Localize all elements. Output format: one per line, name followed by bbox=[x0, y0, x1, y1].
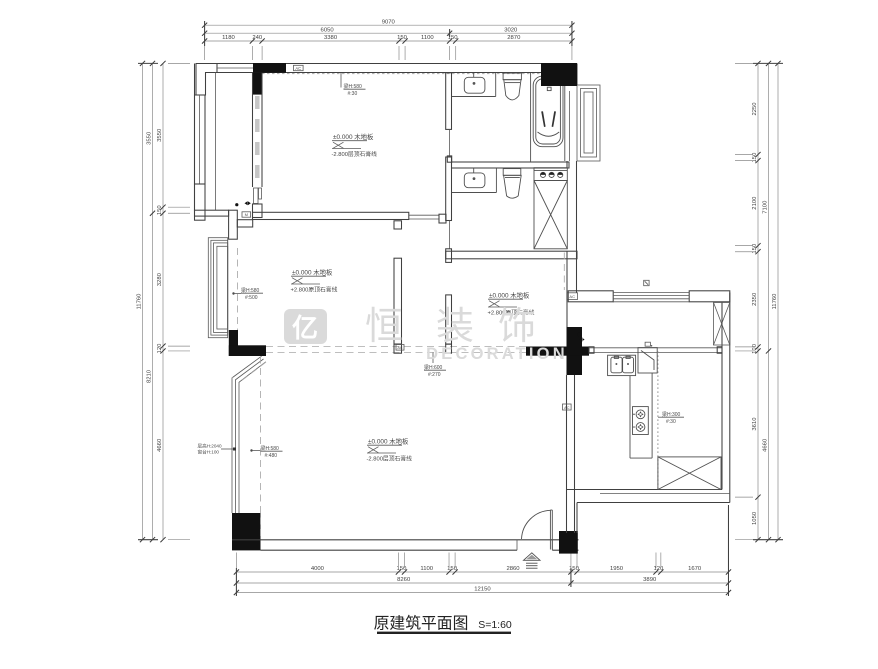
svg-text:8210: 8210 bbox=[146, 369, 152, 383]
svg-text:#:30: #:30 bbox=[666, 419, 676, 425]
svg-text:3550: 3550 bbox=[157, 128, 163, 142]
svg-text:+2.800原顶石膏线: +2.800原顶石膏线 bbox=[291, 285, 338, 293]
svg-text:3550: 3550 bbox=[146, 131, 152, 145]
svg-text:4000: 4000 bbox=[311, 566, 325, 572]
svg-text:层高H:2040: 层高H:2040 bbox=[198, 443, 222, 450]
svg-text:M: M bbox=[245, 212, 248, 217]
svg-text:#:480: #:480 bbox=[265, 453, 278, 459]
svg-text:8260: 8260 bbox=[397, 577, 411, 583]
svg-text:S=1:60: S=1:60 bbox=[478, 619, 512, 631]
svg-text:AC: AC bbox=[569, 294, 575, 299]
svg-text:±0.000 木地板: ±0.000 木地板 bbox=[333, 132, 374, 141]
svg-text:2100: 2100 bbox=[752, 196, 758, 210]
svg-text:±0.000 木地板: ±0.000 木地板 bbox=[368, 437, 409, 446]
svg-text:6050: 6050 bbox=[321, 27, 335, 33]
svg-text:AC: AC bbox=[295, 66, 301, 71]
svg-text:#:500: #:500 bbox=[245, 295, 258, 301]
svg-text:2870: 2870 bbox=[507, 35, 521, 41]
svg-text:AC: AC bbox=[564, 406, 570, 410]
svg-text:恒: 恒 bbox=[365, 306, 403, 348]
svg-text:3890: 3890 bbox=[643, 577, 657, 583]
svg-text:11760: 11760 bbox=[772, 293, 778, 310]
svg-text:±0.000 木地板: ±0.000 木地板 bbox=[489, 291, 530, 300]
svg-text:2250: 2250 bbox=[752, 102, 758, 116]
svg-text:3020: 3020 bbox=[504, 27, 518, 33]
svg-text:3280: 3280 bbox=[157, 272, 163, 286]
svg-text:#:30: #:30 bbox=[348, 91, 358, 97]
svg-text:原建筑平面图: 原建筑平面图 bbox=[374, 615, 469, 633]
svg-text:亿: 亿 bbox=[292, 313, 318, 343]
svg-text:120: 120 bbox=[157, 343, 163, 354]
svg-text:7100: 7100 bbox=[762, 200, 768, 214]
svg-text:1100: 1100 bbox=[421, 35, 434, 41]
svg-text:4660: 4660 bbox=[762, 438, 768, 452]
svg-text:11760: 11760 bbox=[136, 293, 142, 310]
svg-text:150: 150 bbox=[157, 205, 163, 216]
svg-text:-2.800层顶石膏线: -2.800层顶石膏线 bbox=[367, 454, 413, 462]
svg-text:±0.000 木地板: ±0.000 木地板 bbox=[292, 268, 333, 277]
svg-text:DECORATION: DECORATION bbox=[426, 345, 568, 363]
svg-text:2860: 2860 bbox=[506, 566, 520, 572]
svg-text:窗台H:100: 窗台H:100 bbox=[198, 449, 220, 456]
svg-text:#:270: #:270 bbox=[428, 372, 441, 378]
svg-text:1050: 1050 bbox=[752, 511, 758, 525]
svg-text:150: 150 bbox=[397, 35, 408, 41]
svg-text:饰: 饰 bbox=[498, 306, 536, 348]
svg-text:100: 100 bbox=[752, 343, 758, 354]
svg-text:4660: 4660 bbox=[157, 438, 163, 452]
svg-text:3610: 3610 bbox=[752, 417, 758, 431]
svg-text:1100: 1100 bbox=[420, 566, 433, 572]
svg-text:1180: 1180 bbox=[222, 35, 235, 41]
svg-text:1950: 1950 bbox=[610, 566, 624, 572]
svg-text:2350: 2350 bbox=[752, 292, 758, 306]
svg-text:-2.800层顶石膏线: -2.800层顶石膏线 bbox=[332, 150, 378, 158]
svg-text:3380: 3380 bbox=[324, 35, 338, 41]
svg-text:120: 120 bbox=[653, 566, 664, 572]
svg-text:12150: 12150 bbox=[474, 587, 491, 593]
svg-text:240: 240 bbox=[252, 35, 263, 41]
svg-text:9070: 9070 bbox=[382, 19, 396, 25]
svg-text:1670: 1670 bbox=[688, 566, 702, 572]
svg-text:装: 装 bbox=[436, 306, 474, 348]
